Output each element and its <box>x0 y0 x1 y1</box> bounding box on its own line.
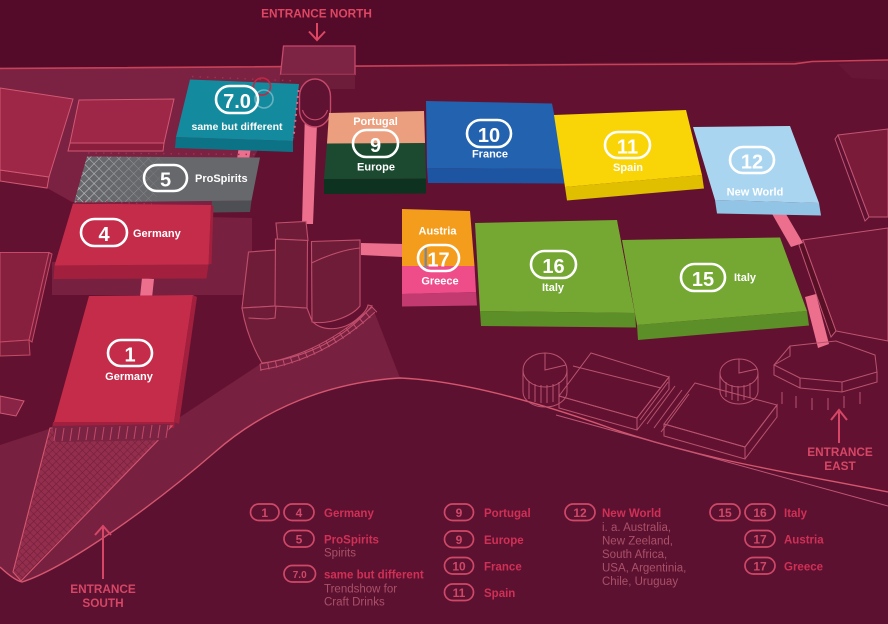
svg-text:12: 12 <box>741 152 763 174</box>
svg-text:ENTRANCE NORTH: ENTRANCE NORTH <box>261 7 372 21</box>
svg-text:Austria: Austria <box>784 535 824 547</box>
svg-text:9: 9 <box>370 135 381 157</box>
svg-text:5: 5 <box>160 170 171 192</box>
svg-text:9: 9 <box>456 533 463 547</box>
svg-text:Trendshow for: Trendshow for <box>324 584 397 596</box>
svg-text:Italy: Italy <box>734 272 757 284</box>
svg-text:France: France <box>484 562 522 574</box>
svg-text:ENTRANCE: ENTRANCE <box>70 582 136 596</box>
svg-text:Greece: Greece <box>421 276 458 288</box>
svg-text:i. a. Australia,: i. a. Australia, <box>602 522 671 534</box>
svg-text:New World: New World <box>727 187 784 199</box>
svg-text:France: France <box>472 149 508 161</box>
svg-text:7.0: 7.0 <box>293 570 307 581</box>
svg-text:New World: New World <box>602 508 661 520</box>
svg-text:1: 1 <box>124 345 135 367</box>
svg-text:USA, Argentinia,: USA, Argentinia, <box>602 563 686 575</box>
svg-text:10: 10 <box>452 560 466 574</box>
svg-text:EAST: EAST <box>824 459 856 473</box>
svg-text:11: 11 <box>453 586 466 600</box>
svg-text:4: 4 <box>98 224 110 246</box>
svg-text:New Zeeland,: New Zeeland, <box>602 536 673 548</box>
svg-text:Europe: Europe <box>484 535 524 547</box>
svg-text:Craft Drinks: Craft Drinks <box>324 597 385 609</box>
svg-text:Portugal: Portugal <box>353 116 398 128</box>
svg-text:Chile, Uruguay: Chile, Uruguay <box>602 576 678 588</box>
svg-text:Europe: Europe <box>357 162 395 174</box>
svg-text:Spain: Spain <box>484 588 515 600</box>
svg-text:16: 16 <box>753 506 767 520</box>
svg-text:9: 9 <box>456 506 463 520</box>
svg-text:Austria: Austria <box>419 226 458 238</box>
svg-text:same but different: same but different <box>324 570 424 582</box>
svg-text:17: 17 <box>753 533 767 547</box>
svg-text:Spain: Spain <box>613 162 643 174</box>
svg-text:4: 4 <box>296 506 303 520</box>
svg-text:Portugal: Portugal <box>484 508 531 520</box>
svg-text:10: 10 <box>478 125 500 147</box>
svg-text:11: 11 <box>617 137 638 159</box>
svg-text:Germany: Germany <box>324 508 374 520</box>
svg-text:ProSpirits: ProSpirits <box>324 535 379 547</box>
svg-text:ProSpirits: ProSpirits <box>195 173 248 185</box>
svg-text:Germany: Germany <box>105 371 154 383</box>
svg-text:Greece: Greece <box>784 562 823 574</box>
svg-text:same but different: same but different <box>191 121 283 133</box>
svg-text:7.0: 7.0 <box>223 91 251 113</box>
svg-text:SOUTH: SOUTH <box>82 596 123 610</box>
svg-text:1: 1 <box>261 506 268 520</box>
svg-text:ENTRANCE: ENTRANCE <box>807 445 873 459</box>
svg-text:12: 12 <box>573 506 587 520</box>
svg-text:Italy: Italy <box>784 508 808 520</box>
svg-text:17: 17 <box>427 250 449 272</box>
svg-text:Germany: Germany <box>133 228 182 240</box>
svg-text:17: 17 <box>753 560 767 574</box>
svg-text:South Africa,: South Africa, <box>602 549 667 561</box>
svg-text:16: 16 <box>542 256 564 278</box>
svg-text:Spirits: Spirits <box>324 548 356 560</box>
svg-text:5: 5 <box>296 533 303 547</box>
svg-text:15: 15 <box>718 506 732 520</box>
svg-text:15: 15 <box>692 269 714 291</box>
svg-text:Italy: Italy <box>542 282 565 294</box>
